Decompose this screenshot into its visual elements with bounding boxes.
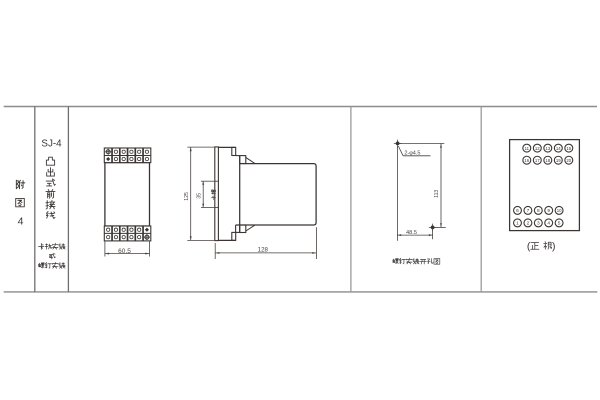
svg-text:35: 35 [196,193,202,199]
svg-text:2-φ4.5: 2-φ4.5 [404,151,420,157]
svg-text:8: 8 [537,208,540,214]
svg-text:20: 20 [566,158,571,163]
svg-text:17: 17 [535,158,540,163]
svg-text:18: 18 [545,158,550,163]
svg-text:5: 5 [558,221,561,227]
svg-text:SJ-4: SJ-4 [41,138,62,149]
svg-text:60.5: 60.5 [118,248,131,255]
svg-text:16: 16 [524,158,529,163]
svg-text:48.5: 48.5 [406,230,417,236]
svg-text:6: 6 [516,208,519,214]
svg-text:4: 4 [547,221,550,227]
svg-text:128: 128 [258,246,269,253]
svg-text:1: 1 [516,221,519,227]
svg-text:7: 7 [527,208,530,214]
svg-text:3: 3 [537,221,540,227]
svg-text:19: 19 [556,158,561,163]
svg-text:125: 125 [184,192,190,201]
svg-text:13: 13 [545,146,550,151]
svg-text:(: ( [527,240,531,252]
svg-text:15: 15 [566,146,571,151]
svg-text:12: 12 [535,146,540,151]
svg-text:11: 11 [525,146,530,151]
svg-text:113: 113 [434,190,440,198]
svg-text:4: 4 [18,216,24,228]
svg-text:): ) [552,240,556,252]
svg-text:14: 14 [556,146,561,151]
svg-text:2: 2 [527,221,530,227]
svg-text:9: 9 [547,208,550,214]
svg-text:10: 10 [557,208,562,213]
